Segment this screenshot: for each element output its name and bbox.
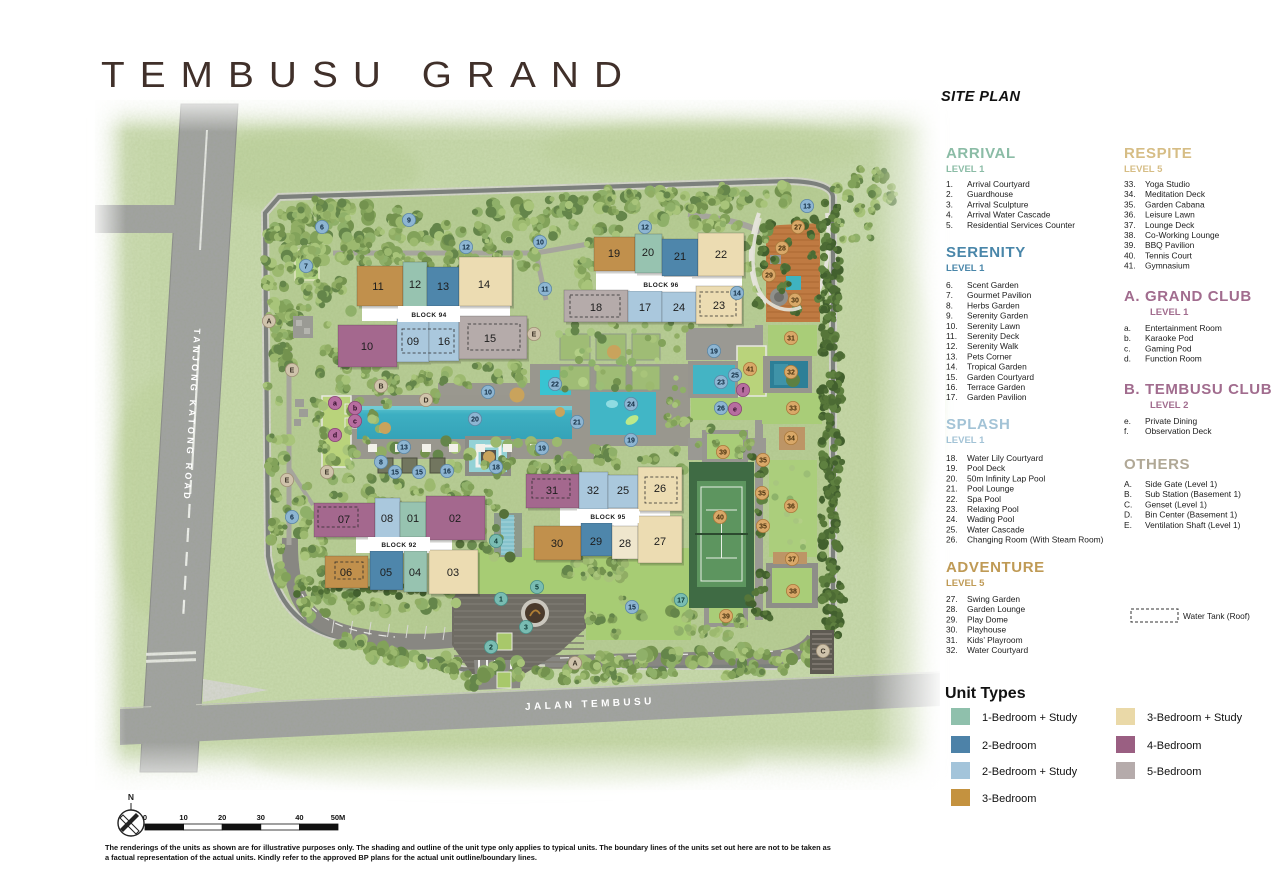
svg-text:Garden Lounge: Garden Lounge <box>967 604 1026 614</box>
svg-text:Changing Room (With Steam Room: Changing Room (With Steam Room) <box>967 535 1104 545</box>
svg-text:36: 36 <box>787 504 795 511</box>
svg-text:36.: 36. <box>1124 210 1136 220</box>
svg-text:2.: 2. <box>946 189 953 199</box>
svg-text:13.: 13. <box>946 351 958 361</box>
svg-text:Swing Garden: Swing Garden <box>967 594 1020 604</box>
svg-text:A: A <box>266 319 271 326</box>
svg-text:39: 39 <box>719 450 727 457</box>
svg-text:The renderings of the units as: The renderings of the units as shown are… <box>105 843 831 852</box>
svg-text:29: 29 <box>590 536 602 548</box>
svg-text:Kids’ Playroom: Kids’ Playroom <box>967 635 1023 645</box>
svg-text:2: 2 <box>489 645 493 652</box>
svg-text:2-Bedroom: 2-Bedroom <box>982 740 1036 752</box>
svg-text:34.: 34. <box>1124 189 1136 199</box>
svg-text:Scent Garden: Scent Garden <box>967 280 1019 290</box>
svg-text:12.: 12. <box>946 341 958 351</box>
svg-text:35: 35 <box>759 458 767 465</box>
svg-text:15: 15 <box>484 333 496 345</box>
svg-text:D.: D. <box>1124 510 1132 520</box>
svg-text:08: 08 <box>381 513 393 525</box>
svg-text:b.: b. <box>1124 333 1131 343</box>
svg-text:Residential Services Counter: Residential Services Counter <box>967 220 1075 230</box>
svg-text:E: E <box>285 478 290 485</box>
svg-text:23: 23 <box>713 300 725 312</box>
svg-text:26: 26 <box>654 483 666 495</box>
svg-text:Serenity Lawn: Serenity Lawn <box>967 321 1020 331</box>
svg-text:24.: 24. <box>946 514 958 524</box>
svg-text:Sub Station (Basement 1): Sub Station (Basement 1) <box>1145 489 1241 499</box>
svg-text:Water Cascade: Water Cascade <box>967 524 1025 534</box>
svg-text:20: 20 <box>471 417 479 424</box>
svg-text:25.: 25. <box>946 524 958 534</box>
svg-text:38: 38 <box>789 589 797 596</box>
svg-text:9: 9 <box>407 218 411 225</box>
svg-text:Co-Working Lounge: Co-Working Lounge <box>1145 230 1220 240</box>
svg-text:14.: 14. <box>946 362 958 372</box>
svg-text:24: 24 <box>673 302 685 314</box>
svg-text:LEVEL 1: LEVEL 1 <box>946 164 985 175</box>
svg-text:19: 19 <box>710 349 718 356</box>
svg-text:E: E <box>325 470 330 477</box>
svg-text:Playhouse: Playhouse <box>967 625 1006 635</box>
svg-text:30.: 30. <box>946 625 958 635</box>
svg-text:Serenity Garden: Serenity Garden <box>967 311 1028 321</box>
svg-text:LEVEL 5: LEVEL 5 <box>1124 164 1163 175</box>
svg-text:a.: a. <box>1124 323 1131 333</box>
svg-text:LEVEL 1: LEVEL 1 <box>1150 307 1189 318</box>
svg-text:28: 28 <box>778 246 786 253</box>
svg-text:18.: 18. <box>946 453 958 463</box>
svg-text:35.: 35. <box>1124 199 1136 209</box>
svg-text:26.: 26. <box>946 535 958 545</box>
svg-text:17.: 17. <box>946 392 958 402</box>
svg-text:B.: B. <box>1124 489 1132 499</box>
svg-text:4-Bedroom: 4-Bedroom <box>1147 740 1201 752</box>
svg-text:Wading Pool: Wading Pool <box>967 514 1014 524</box>
svg-text:E: E <box>532 332 537 339</box>
svg-text:12: 12 <box>641 225 649 232</box>
svg-text:Entertainment Room: Entertainment Room <box>1145 323 1222 333</box>
svg-text:12: 12 <box>409 279 421 291</box>
svg-text:E.: E. <box>1124 520 1132 530</box>
svg-text:37: 37 <box>788 557 796 564</box>
svg-text:20.: 20. <box>946 473 958 483</box>
svg-text:Yoga Studio: Yoga Studio <box>1145 179 1190 189</box>
svg-text:D: D <box>423 398 428 405</box>
svg-text:5-Bedroom: 5-Bedroom <box>1147 766 1201 778</box>
svg-text:15: 15 <box>391 470 399 477</box>
svg-text:40: 40 <box>295 813 303 822</box>
svg-text:Play Dome: Play Dome <box>967 614 1008 624</box>
svg-text:7: 7 <box>304 264 308 271</box>
svg-text:b: b <box>353 406 357 413</box>
svg-text:BLOCK 94: BLOCK 94 <box>411 312 446 319</box>
svg-text:37.: 37. <box>1124 220 1136 230</box>
svg-text:23.: 23. <box>946 504 958 514</box>
svg-text:31: 31 <box>787 336 795 343</box>
svg-text:Serenity Deck: Serenity Deck <box>967 331 1020 341</box>
svg-text:c.: c. <box>1124 343 1131 353</box>
svg-text:30: 30 <box>791 298 799 305</box>
svg-text:6: 6 <box>290 515 294 522</box>
svg-text:e: e <box>733 407 737 414</box>
svg-text:23: 23 <box>717 380 725 387</box>
svg-text:Function Room: Function Room <box>1145 354 1202 364</box>
svg-text:15: 15 <box>628 605 636 612</box>
svg-text:40: 40 <box>716 515 724 522</box>
svg-text:11: 11 <box>372 281 383 293</box>
svg-text:7.: 7. <box>946 290 953 300</box>
svg-text:16.: 16. <box>946 382 958 392</box>
svg-text:Leisure Lawn: Leisure Lawn <box>1145 210 1195 220</box>
svg-text:06: 06 <box>340 567 352 579</box>
svg-text:12: 12 <box>462 245 470 252</box>
svg-text:A: A <box>572 661 577 668</box>
svg-text:Pets Corner: Pets Corner <box>967 351 1012 361</box>
svg-text:TEMBUSU GRAND: TEMBUSU GRAND <box>101 54 637 95</box>
svg-text:4: 4 <box>494 539 498 546</box>
svg-text:16: 16 <box>438 336 450 348</box>
svg-text:c: c <box>353 419 357 426</box>
svg-text:B: B <box>378 384 383 391</box>
svg-text:22.: 22. <box>946 494 958 504</box>
svg-text:31: 31 <box>546 485 558 497</box>
svg-text:16: 16 <box>443 469 451 476</box>
svg-text:Ventilation Shaft (Level 1): Ventilation Shaft (Level 1) <box>1145 520 1241 530</box>
svg-text:Genset (Level 1): Genset (Level 1) <box>1145 499 1207 509</box>
svg-text:05: 05 <box>380 567 392 579</box>
svg-text:04: 04 <box>409 567 421 579</box>
svg-text:E: E <box>290 368 295 375</box>
svg-text:50m Infinity Lap Pool: 50m Infinity Lap Pool <box>967 473 1045 483</box>
svg-text:01: 01 <box>407 513 419 525</box>
svg-text:26: 26 <box>717 406 725 413</box>
svg-text:C: C <box>820 649 825 656</box>
svg-text:03: 03 <box>447 567 459 579</box>
svg-text:19: 19 <box>608 248 620 260</box>
svg-text:BLOCK 95: BLOCK 95 <box>590 514 625 521</box>
svg-text:LEVEL 1: LEVEL 1 <box>946 435 985 446</box>
svg-text:13: 13 <box>437 281 449 293</box>
svg-text:27: 27 <box>794 225 802 232</box>
svg-text:Arrival Water Cascade: Arrival Water Cascade <box>967 210 1051 220</box>
svg-text:B. TEMBUSU CLUB: B. TEMBUSU CLUB <box>1124 381 1272 398</box>
svg-text:19: 19 <box>627 438 635 445</box>
svg-text:3: 3 <box>524 625 528 632</box>
svg-text:Meditation Deck: Meditation Deck <box>1145 189 1206 199</box>
svg-text:Unit Types: Unit Types <box>945 685 1026 702</box>
svg-text:Gymnasium: Gymnasium <box>1145 261 1190 271</box>
svg-text:10: 10 <box>361 341 373 353</box>
svg-text:Side Gate (Level 1): Side Gate (Level 1) <box>1145 479 1217 489</box>
svg-text:22: 22 <box>551 382 559 389</box>
svg-text:Water Tank (Roof): Water Tank (Roof) <box>1183 611 1250 621</box>
svg-text:6.: 6. <box>946 280 953 290</box>
svg-text:Relaxing Pool: Relaxing Pool <box>967 504 1019 514</box>
svg-text:8: 8 <box>379 460 383 467</box>
svg-text:41.: 41. <box>1124 261 1136 271</box>
svg-text:BLOCK 92: BLOCK 92 <box>381 542 416 549</box>
svg-text:LEVEL 5: LEVEL 5 <box>946 578 985 589</box>
svg-text:28: 28 <box>619 538 631 550</box>
svg-text:5: 5 <box>535 585 539 592</box>
svg-text:09: 09 <box>407 336 419 348</box>
svg-text:21: 21 <box>573 420 581 427</box>
svg-text:39: 39 <box>722 614 730 621</box>
svg-text:e.: e. <box>1124 416 1131 426</box>
svg-text:A.: A. <box>1124 479 1132 489</box>
svg-text:18: 18 <box>492 465 500 472</box>
svg-text:Serenity Walk: Serenity Walk <box>967 341 1019 351</box>
svg-text:OTHERS: OTHERS <box>1124 456 1190 473</box>
svg-text:1: 1 <box>499 597 503 604</box>
svg-text:30: 30 <box>551 538 563 550</box>
svg-text:BBQ Pavilion: BBQ Pavilion <box>1145 240 1195 250</box>
svg-text:50M: 50M <box>331 813 346 822</box>
svg-text:25: 25 <box>731 373 739 380</box>
svg-text:Bin Center (Basement 1): Bin Center (Basement 1) <box>1145 510 1237 520</box>
svg-text:Water Lily Courtyard: Water Lily Courtyard <box>967 453 1043 463</box>
svg-text:33: 33 <box>789 406 797 413</box>
svg-text:15: 15 <box>415 470 423 477</box>
svg-text:11.: 11. <box>946 331 957 341</box>
svg-text:SITE PLAN: SITE PLAN <box>941 89 1020 105</box>
svg-text:27.: 27. <box>946 594 958 604</box>
svg-text:LEVEL 1: LEVEL 1 <box>946 263 985 274</box>
svg-text:BLOCK 96: BLOCK 96 <box>643 282 678 289</box>
svg-text:Arrival Sculpture: Arrival Sculpture <box>967 199 1029 209</box>
svg-text:Gourmet Pavilion: Gourmet Pavilion <box>967 290 1032 300</box>
svg-text:25: 25 <box>617 485 629 497</box>
svg-text:Terrace Garden: Terrace Garden <box>967 382 1026 392</box>
svg-text:29: 29 <box>765 273 773 280</box>
svg-text:3.: 3. <box>946 199 953 209</box>
svg-text:22: 22 <box>715 249 727 261</box>
svg-text:f.: f. <box>1124 426 1129 436</box>
svg-text:Herbs Garden: Herbs Garden <box>967 300 1020 310</box>
svg-text:40.: 40. <box>1124 250 1136 260</box>
svg-text:Pool Deck: Pool Deck <box>967 463 1006 473</box>
svg-text:13: 13 <box>803 204 811 211</box>
svg-text:8.: 8. <box>946 300 953 310</box>
svg-text:07: 07 <box>338 514 350 526</box>
svg-text:28.: 28. <box>946 604 958 614</box>
svg-text:Guardhouse: Guardhouse <box>967 189 1013 199</box>
svg-text:38.: 38. <box>1124 230 1136 240</box>
svg-text:a factual representation of th: a factual representation of the actual u… <box>105 853 537 862</box>
svg-text:9.: 9. <box>946 311 953 321</box>
svg-text:d: d <box>333 433 337 440</box>
svg-text:0: 0 <box>143 813 147 822</box>
svg-text:20: 20 <box>218 813 226 822</box>
svg-text:33.: 33. <box>1124 179 1136 189</box>
svg-text:2-Bedroom + Study: 2-Bedroom + Study <box>982 766 1078 778</box>
svg-text:19: 19 <box>538 446 546 453</box>
svg-text:11: 11 <box>541 287 549 294</box>
svg-text:a: a <box>333 401 337 408</box>
svg-text:32: 32 <box>587 485 599 497</box>
svg-text:ARRIVAL: ARRIVAL <box>946 145 1016 162</box>
svg-text:32: 32 <box>787 370 795 377</box>
svg-text:27: 27 <box>654 536 666 548</box>
svg-text:Private Dining: Private Dining <box>1145 416 1197 426</box>
svg-text:10.: 10. <box>946 321 958 331</box>
svg-text:20: 20 <box>642 247 654 259</box>
svg-text:5.: 5. <box>946 220 953 230</box>
svg-text:21.: 21. <box>946 484 958 494</box>
svg-text:C.: C. <box>1124 499 1132 509</box>
svg-text:Tennis Court: Tennis Court <box>1145 250 1193 260</box>
svg-text:17: 17 <box>677 598 685 605</box>
svg-text:SPLASH: SPLASH <box>946 416 1010 433</box>
svg-text:Karaoke Pod: Karaoke Pod <box>1145 333 1194 343</box>
svg-text:d.: d. <box>1124 354 1131 364</box>
svg-text:10: 10 <box>484 390 492 397</box>
svg-text:1-Bedroom + Study: 1-Bedroom + Study <box>982 712 1078 724</box>
svg-text:Garden Cabana: Garden Cabana <box>1145 199 1205 209</box>
svg-text:Lounge Deck: Lounge Deck <box>1145 220 1195 230</box>
svg-text:LEVEL 2: LEVEL 2 <box>1150 400 1188 411</box>
svg-text:6: 6 <box>320 225 324 232</box>
svg-text:A. GRAND CLUB: A. GRAND CLUB <box>1124 288 1252 305</box>
svg-text:32.: 32. <box>946 645 958 655</box>
svg-text:Arrival Courtyard: Arrival Courtyard <box>967 179 1030 189</box>
svg-text:14: 14 <box>733 291 741 298</box>
svg-text:15.: 15. <box>946 372 958 382</box>
svg-text:30: 30 <box>257 813 265 822</box>
svg-text:RESPITE: RESPITE <box>1124 145 1192 162</box>
svg-text:Water Courtyard: Water Courtyard <box>967 645 1028 655</box>
svg-text:41: 41 <box>746 367 754 374</box>
svg-text:35: 35 <box>759 524 767 531</box>
svg-text:02: 02 <box>449 513 461 525</box>
svg-text:ADVENTURE: ADVENTURE <box>946 559 1045 576</box>
svg-text:14: 14 <box>478 279 490 291</box>
svg-text:Garden Pavilion: Garden Pavilion <box>967 392 1027 402</box>
svg-text:31.: 31. <box>946 635 958 645</box>
svg-text:SERENITY: SERENITY <box>946 244 1026 261</box>
svg-text:24: 24 <box>627 402 635 409</box>
svg-text:Tropical Garden: Tropical Garden <box>967 362 1027 372</box>
svg-text:1.: 1. <box>946 179 953 189</box>
svg-text:29.: 29. <box>946 614 958 624</box>
svg-text:Observation Deck: Observation Deck <box>1145 426 1212 436</box>
svg-text:Gaming Pod: Gaming Pod <box>1145 343 1192 353</box>
svg-text:3-Bedroom + Study: 3-Bedroom + Study <box>1147 712 1243 724</box>
svg-text:19.: 19. <box>946 463 958 473</box>
svg-text:18: 18 <box>590 302 602 314</box>
svg-text:39.: 39. <box>1124 240 1136 250</box>
svg-text:13: 13 <box>400 445 408 452</box>
svg-text:4.: 4. <box>946 210 953 220</box>
svg-text:21: 21 <box>674 251 686 263</box>
svg-text:N: N <box>128 792 134 802</box>
svg-text:3-Bedroom: 3-Bedroom <box>982 793 1036 805</box>
svg-text:10: 10 <box>179 813 187 822</box>
svg-text:17: 17 <box>639 302 651 314</box>
svg-text:10: 10 <box>536 240 544 247</box>
svg-text:Spa Pool: Spa Pool <box>967 494 1001 504</box>
svg-text:34: 34 <box>787 436 795 443</box>
svg-text:Garden Courtyard: Garden Courtyard <box>967 372 1034 382</box>
svg-text:Pool Lounge: Pool Lounge <box>967 484 1014 494</box>
svg-text:35: 35 <box>758 491 766 498</box>
